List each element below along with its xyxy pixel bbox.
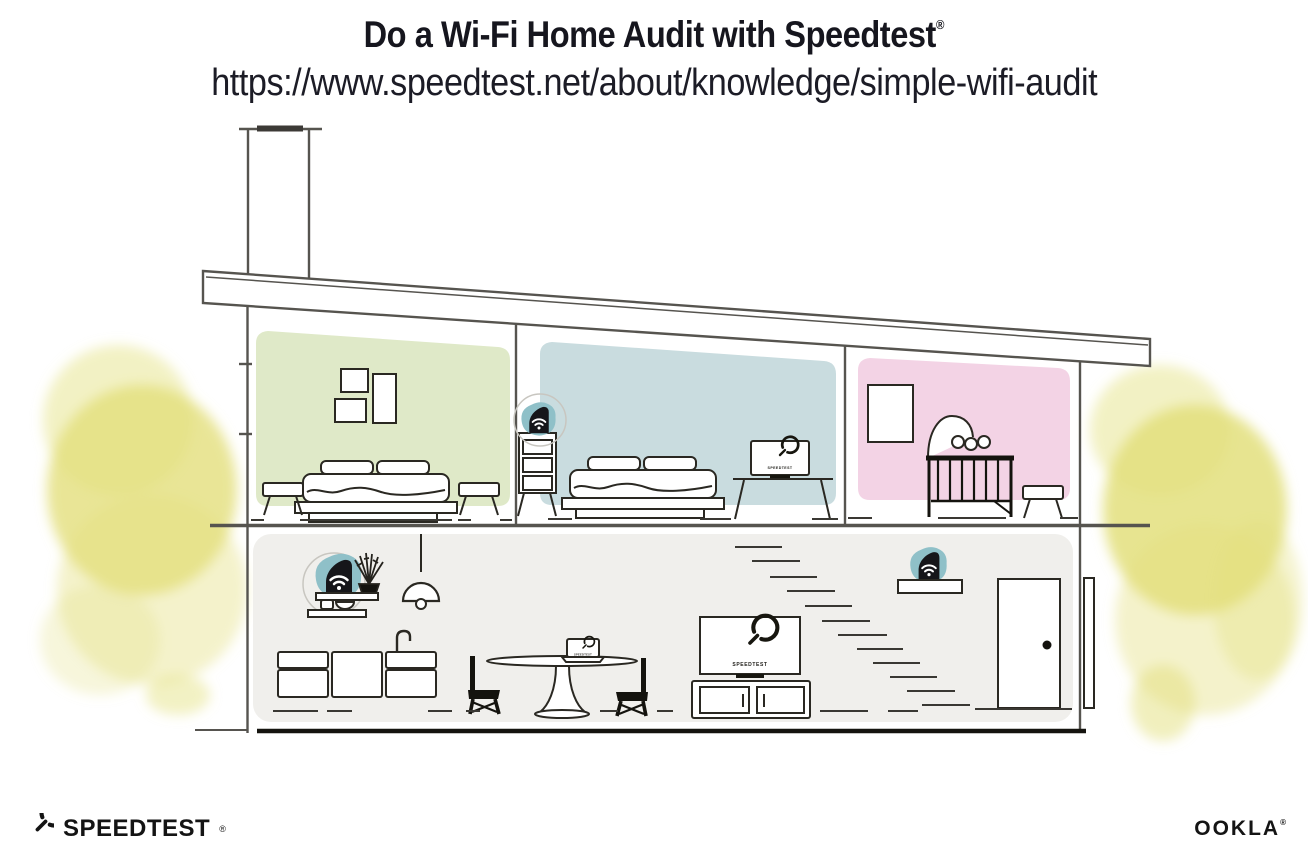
wall-pipe [1084, 578, 1094, 708]
laptop-screen-label: SPEEDTEST [574, 653, 592, 657]
chimney [239, 126, 322, 291]
registered-mark: ® [1280, 818, 1288, 827]
footer: SPEEDTEST® OOKLA® [0, 805, 1308, 853]
ookla-logo: OOKLA® [1194, 817, 1288, 841]
tv-screen-label: SPEEDTEST [732, 662, 767, 668]
tv-area: SPEEDTEST [692, 616, 810, 718]
speedtest-gauge-icon [22, 813, 54, 845]
house-illustration: SPEEDTEST [0, 0, 1308, 861]
speedtest-logo: SPEEDTEST® [22, 813, 226, 845]
tree-left [40, 345, 247, 715]
tree-right [1090, 365, 1303, 741]
ookla-wordmark: OOKLA [1194, 817, 1280, 840]
door-knob [1043, 641, 1052, 650]
speedtest-wordmark: SPEEDTEST [63, 815, 210, 843]
wifi-router-icon [521, 402, 555, 435]
wall-art-frame [868, 385, 913, 442]
registered-mark: ® [219, 824, 226, 834]
laptop: SPEEDTEST [562, 637, 604, 662]
monitor-screen-label: SPEEDTEST [768, 466, 793, 470]
wifi-home-audit-infographic: Do a Wi-Fi Home Audit with Speedtest® ht… [0, 0, 1308, 861]
stool [1023, 486, 1063, 518]
